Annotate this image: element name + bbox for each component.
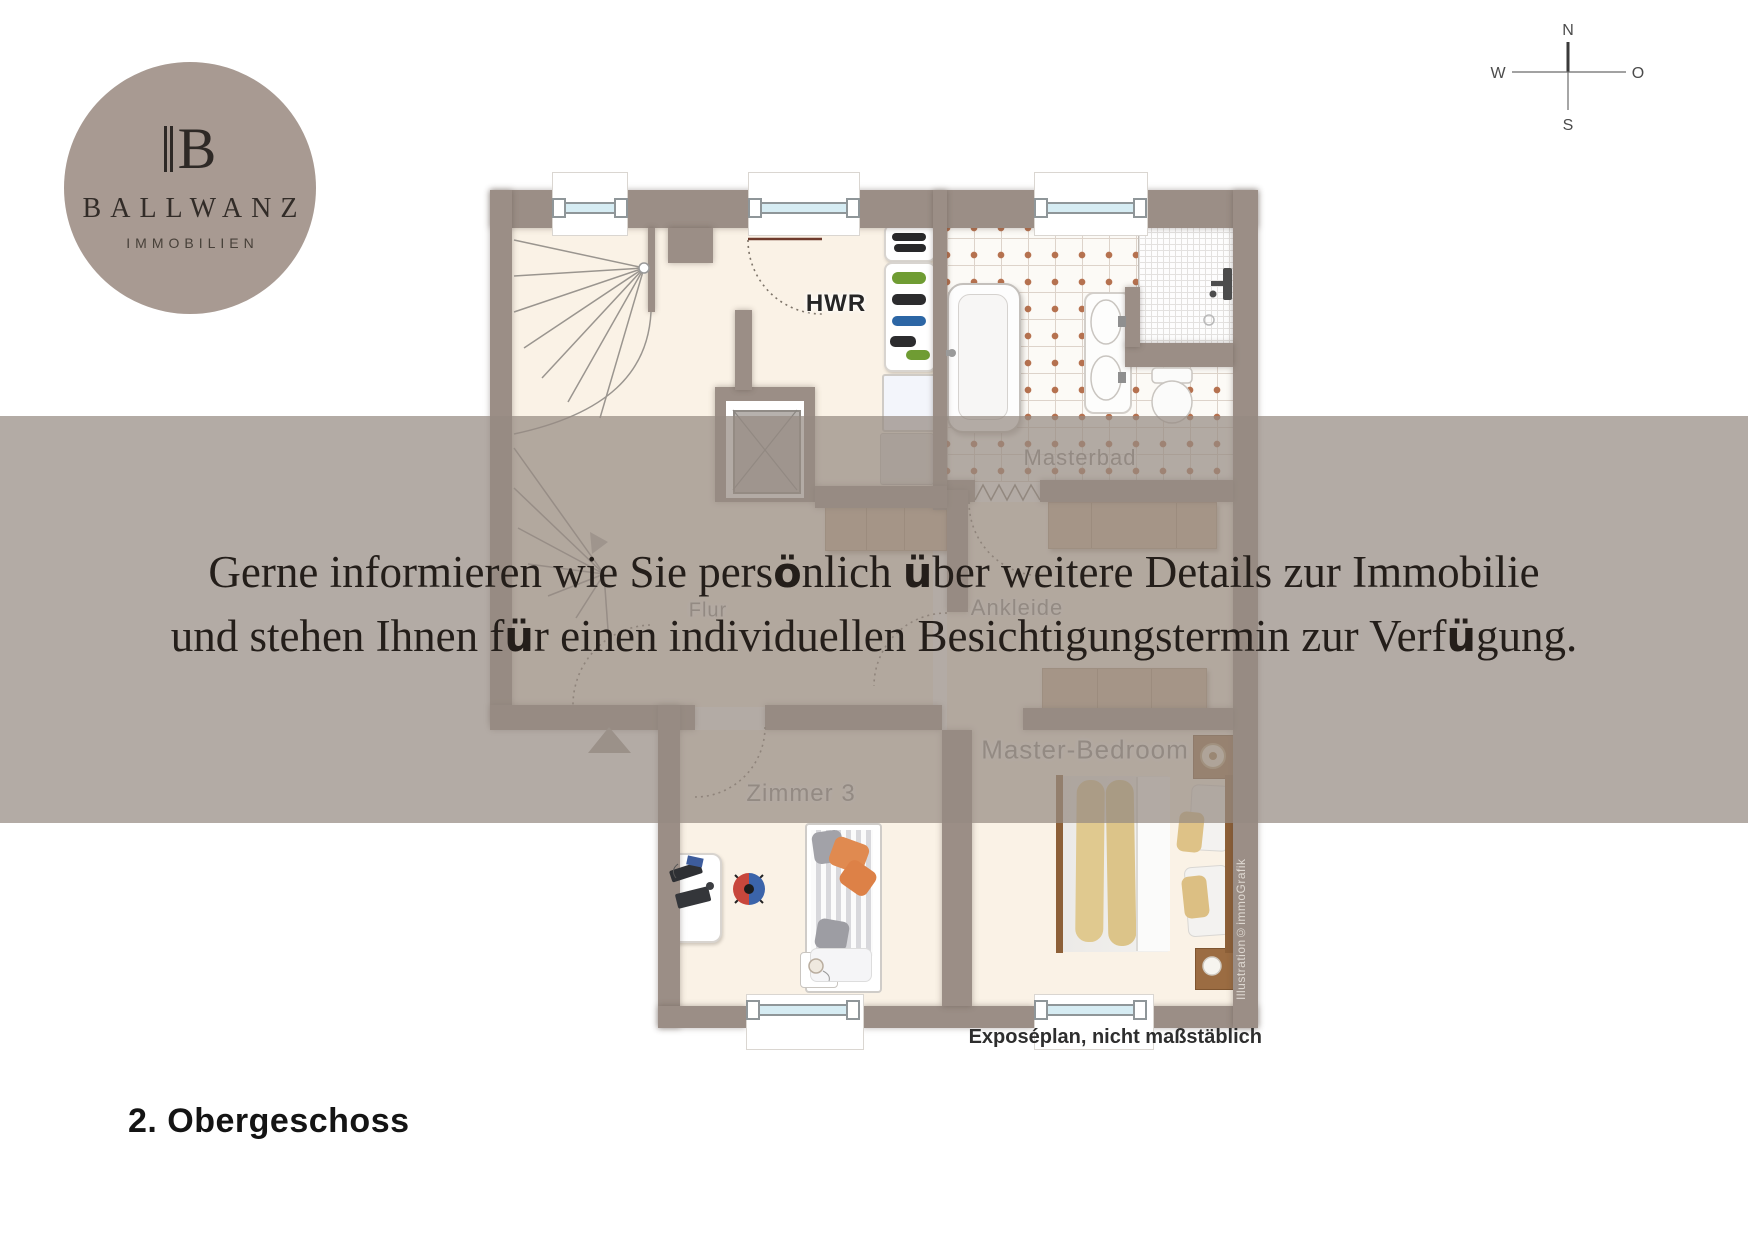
compass-west-label: W: [1490, 65, 1506, 82]
wall: [1125, 343, 1233, 367]
shoes-icon: [906, 350, 930, 360]
expose-page: B BALLWANZ IMMOBILIEN N W O S: [0, 0, 1748, 1240]
logo-bar-icon: [164, 126, 167, 172]
window-frame: [846, 198, 860, 218]
window-glass: [754, 1004, 850, 1016]
logo-bar-icon: [170, 126, 173, 172]
plan-caption: Exposéplan, nicht maßstäblich: [969, 1026, 1262, 1049]
wall: [648, 228, 655, 312]
wall: [618, 190, 756, 228]
compass-rose-icon: N W O S: [1480, 8, 1660, 138]
shower-area: [1138, 228, 1234, 347]
overlay-text-line1: Gerne informieren wie Sie persönlich übe…: [0, 541, 1748, 605]
shelf-box: [884, 224, 936, 262]
wall: [658, 1006, 746, 1028]
window-frame: [846, 1000, 860, 1020]
wall: [862, 1006, 1034, 1028]
window-frame: [748, 198, 762, 218]
nightstand-icon: [1195, 948, 1235, 990]
shoe-cabinet: [884, 262, 936, 372]
room-label-hwr: HWR: [806, 290, 866, 318]
wall: [668, 228, 713, 263]
pillow-white: [810, 948, 872, 982]
shoes-icon: [892, 272, 926, 284]
window-frame: [746, 1000, 760, 1020]
window-glass: [756, 202, 850, 214]
logo-subtitle: IMMOBILIEN: [121, 235, 258, 251]
window-glass: [1042, 202, 1137, 214]
logo-monogram-icon: B: [164, 119, 217, 179]
shoes-icon: [894, 244, 926, 252]
window-frame: [614, 198, 628, 218]
illustration-credit: Illustration©immoGrafik: [1234, 878, 1248, 1000]
compass-south-label: S: [1563, 117, 1574, 134]
shoes-icon: [890, 336, 916, 347]
wall: [1125, 287, 1140, 347]
window-frame: [1034, 1000, 1048, 1020]
window-frame: [1133, 198, 1147, 218]
logo-name: BALLWANZ: [74, 193, 307, 225]
compass-east-label: O: [1632, 65, 1644, 82]
window-frame: [1133, 1000, 1147, 1020]
shoes-icon: [892, 316, 926, 326]
overlay-text-line2: und stehen Ihnen für einen individuellen…: [0, 605, 1748, 669]
window-frame: [1034, 198, 1048, 218]
cushion-yellow: [1181, 875, 1210, 919]
window-glass: [1044, 1004, 1137, 1016]
brand-logo: B BALLWANZ IMMOBILIEN: [64, 62, 316, 314]
window-glass: [558, 202, 620, 214]
compass-north-label: N: [1562, 22, 1574, 39]
floor-title: 2. Obergeschoss: [128, 1102, 410, 1141]
shoes-icon: [892, 233, 926, 241]
bathtub-basin: [958, 294, 1008, 420]
bathtub-icon: [947, 283, 1021, 433]
wall: [735, 310, 752, 390]
window-frame: [552, 198, 566, 218]
shoes-icon: [892, 294, 926, 305]
logo-letter: B: [178, 120, 217, 178]
overlay-text: Gerne informieren wie Sie persönlich übe…: [0, 541, 1748, 669]
